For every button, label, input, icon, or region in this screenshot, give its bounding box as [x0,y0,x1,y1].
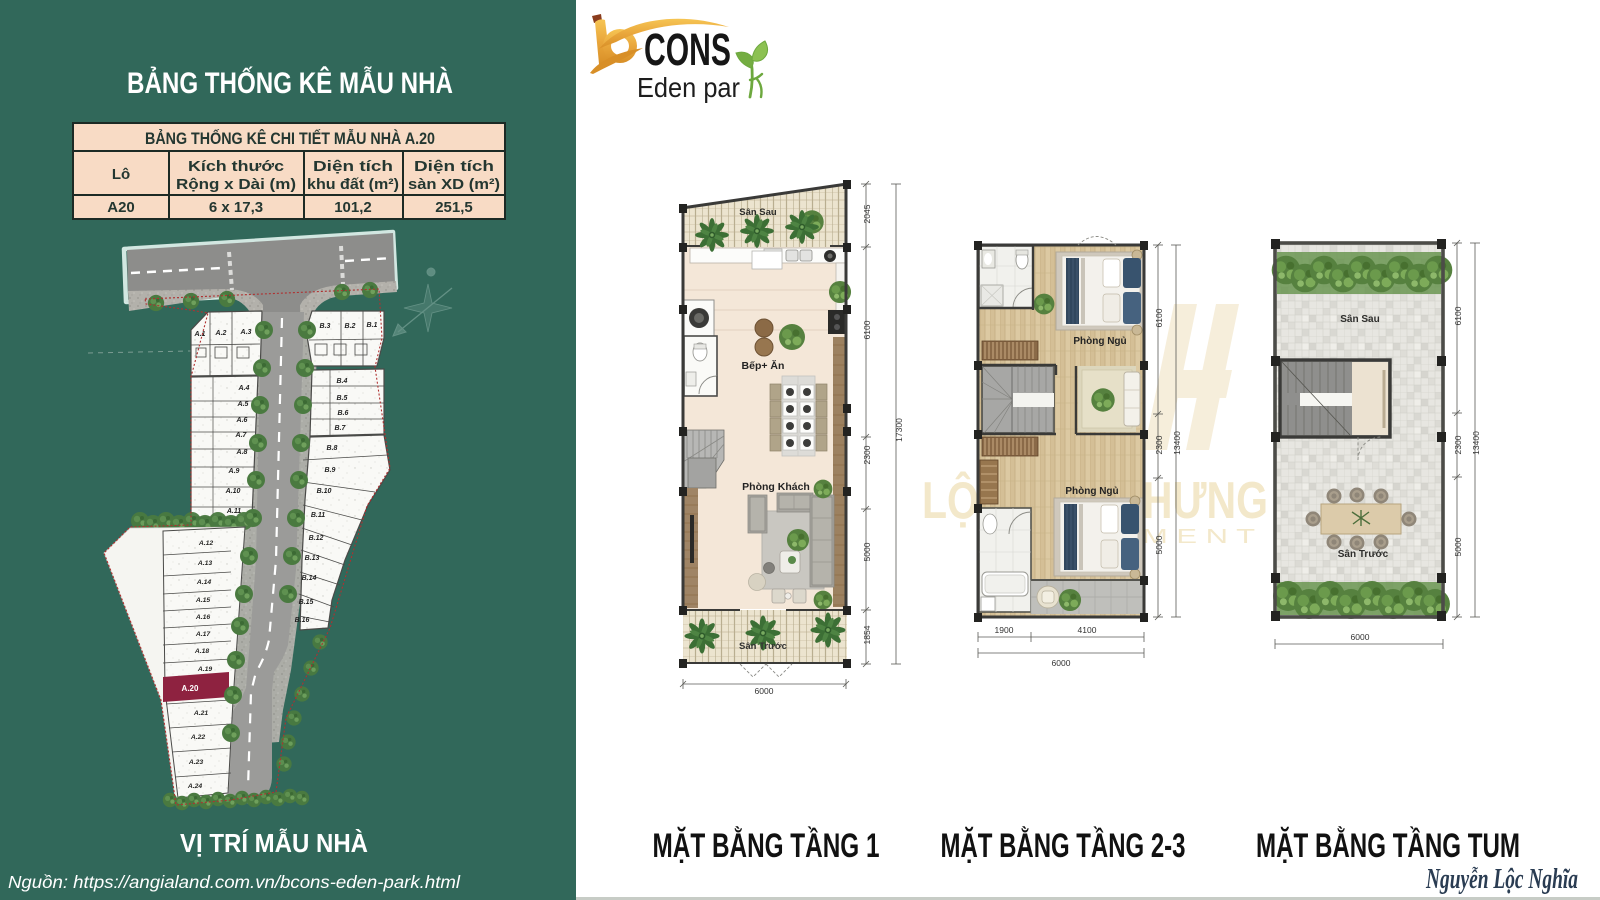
svg-text:6000: 6000 [1351,632,1370,642]
svg-text:A.20: A.20 [182,684,199,693]
svg-text:A.6: A.6 [236,417,248,424]
svg-text:Rộng x Dài (m): Rộng x Dài (m) [176,176,296,193]
svg-text:B.1: B.1 [367,322,378,329]
svg-text:B.10: B.10 [317,488,332,495]
svg-text:1854: 1854 [862,625,872,644]
svg-text:A.16: A.16 [195,614,211,621]
svg-text:Nguồn: https://angialand.com.v: Nguồn: https://angialand.com.vn/bcons-ed… [8,872,461,892]
svg-text:B.7: B.7 [335,425,347,432]
svg-text:B.13: B.13 [305,555,320,562]
svg-text:B.9: B.9 [325,467,336,474]
svg-text:6 x 17,3: 6 x 17,3 [209,199,263,216]
svg-text:6000: 6000 [755,686,774,696]
svg-text:B.16: B.16 [295,617,310,624]
svg-text:Eden par: Eden par [637,72,740,103]
svg-text:B.8: B.8 [327,445,338,452]
svg-text:B.4: B.4 [337,378,348,385]
svg-text:BẢNG THỐNG KÊ CHI TIẾT MẪU NHÀ: BẢNG THỐNG KÊ CHI TIẾT MẪU NHÀ A.20 [145,128,435,148]
svg-text:Sân Sau: Sân Sau [1340,314,1379,325]
svg-text:A.22: A.22 [190,734,206,741]
svg-text:A.4: A.4 [238,385,250,392]
svg-text:101,2: 101,2 [334,199,372,216]
svg-text:6100: 6100 [862,320,872,339]
svg-text:B.6: B.6 [338,410,349,417]
svg-text:A20: A20 [107,199,135,216]
svg-text:A.9: A.9 [228,468,240,475]
svg-text:2045: 2045 [862,204,872,223]
svg-text:5000: 5000 [1453,537,1463,556]
svg-text:B.2: B.2 [345,323,356,330]
svg-text:BẢNG THỐNG KÊ MẪU NHÀ: BẢNG THỐNG KÊ MẪU NHÀ [127,66,453,100]
svg-text:A.7: A.7 [235,432,248,439]
svg-text:2300: 2300 [862,445,872,464]
svg-text:13400: 13400 [1471,431,1481,455]
svg-text:Sân Trước: Sân Trước [739,641,787,652]
svg-text:B.11: B.11 [311,512,325,519]
svg-text:5000: 5000 [862,542,872,561]
svg-text:5000: 5000 [1154,535,1164,554]
svg-text:Sân Trước: Sân Trước [1338,549,1389,560]
svg-text:Phòng Ngủ: Phòng Ngủ [1065,486,1118,497]
svg-text:MẶT BẰNG TẦNG TUM: MẶT BẰNG TẦNG TUM [1256,827,1520,865]
svg-text:A.13: A.13 [197,560,213,567]
svg-text:A.23: A.23 [188,759,204,766]
svg-text:Phòng Ngủ: Phòng Ngủ [1073,336,1126,347]
svg-text:A.21: A.21 [193,710,209,717]
svg-text:A.14: A.14 [196,579,212,586]
svg-text:Bếp+ Ăn: Bếp+ Ăn [742,359,785,372]
svg-text:A.5: A.5 [237,401,249,408]
svg-text:A.17: A.17 [195,631,212,638]
svg-text:B.3: B.3 [320,323,331,330]
svg-text:B.12: B.12 [309,535,324,542]
svg-text:A.10: A.10 [225,488,241,495]
svg-text:B.5: B.5 [337,395,348,402]
svg-text:Sân Sau: Sân Sau [739,207,777,218]
svg-text:B.14: B.14 [302,575,317,582]
svg-text:A.24: A.24 [187,783,203,790]
svg-text:Lô: Lô [112,166,130,183]
svg-text:Diện tích: Diện tích [313,158,393,175]
svg-text:6100: 6100 [1154,308,1164,327]
svg-text:Phòng Khách: Phòng Khách [742,481,810,493]
svg-text:13400: 13400 [1172,431,1182,455]
svg-text:VỊ TRÍ MẪU NHÀ: VỊ TRÍ MẪU NHÀ [180,828,368,858]
svg-text:A.3: A.3 [240,329,252,336]
svg-text:Nguyễn Lộc Nghĩa: Nguyễn Lộc Nghĩa [1425,864,1578,895]
svg-text:B.15: B.15 [299,599,314,606]
svg-text:A.12: A.12 [198,540,214,547]
svg-text:Diện tích: Diện tích [414,158,494,175]
svg-text:2300: 2300 [1154,435,1164,454]
svg-text:A.2: A.2 [215,330,227,337]
svg-text:MẶT BẰNG TẦNG 1: MẶT BẰNG TẦNG 1 [653,827,880,865]
svg-text:2300: 2300 [1453,435,1463,454]
svg-text:A.1: A.1 [194,331,206,338]
svg-text:MẶT BẰNG TẦNG 2-3: MẶT BẰNG TẦNG 2-3 [941,827,1186,865]
svg-text:CONS: CONS [644,24,731,75]
svg-text:251,5: 251,5 [435,199,473,216]
svg-text:A.18: A.18 [194,648,210,655]
svg-text:sàn XD (m²): sàn XD (m²) [408,176,500,193]
svg-text:4100: 4100 [1078,625,1097,635]
svg-text:1900: 1900 [995,625,1014,635]
svg-text:A.8: A.8 [236,449,248,456]
svg-text:khu đất (m²): khu đất (m²) [307,176,399,193]
svg-text:6100: 6100 [1453,306,1463,325]
svg-text:6000: 6000 [1052,658,1071,668]
svg-text:A.15: A.15 [195,597,211,604]
svg-text:A.19: A.19 [197,666,213,673]
svg-text:17300: 17300 [894,418,904,442]
svg-text:Kích thước: Kích thước [188,158,284,175]
